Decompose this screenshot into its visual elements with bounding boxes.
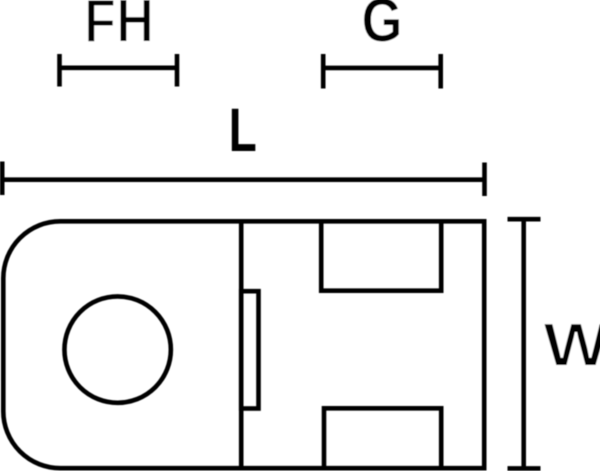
svg-text:G: G xyxy=(362,0,403,56)
svg-text:L: L xyxy=(229,96,257,164)
svg-text:W: W xyxy=(543,310,600,380)
svg-text:FH: FH xyxy=(84,0,154,56)
